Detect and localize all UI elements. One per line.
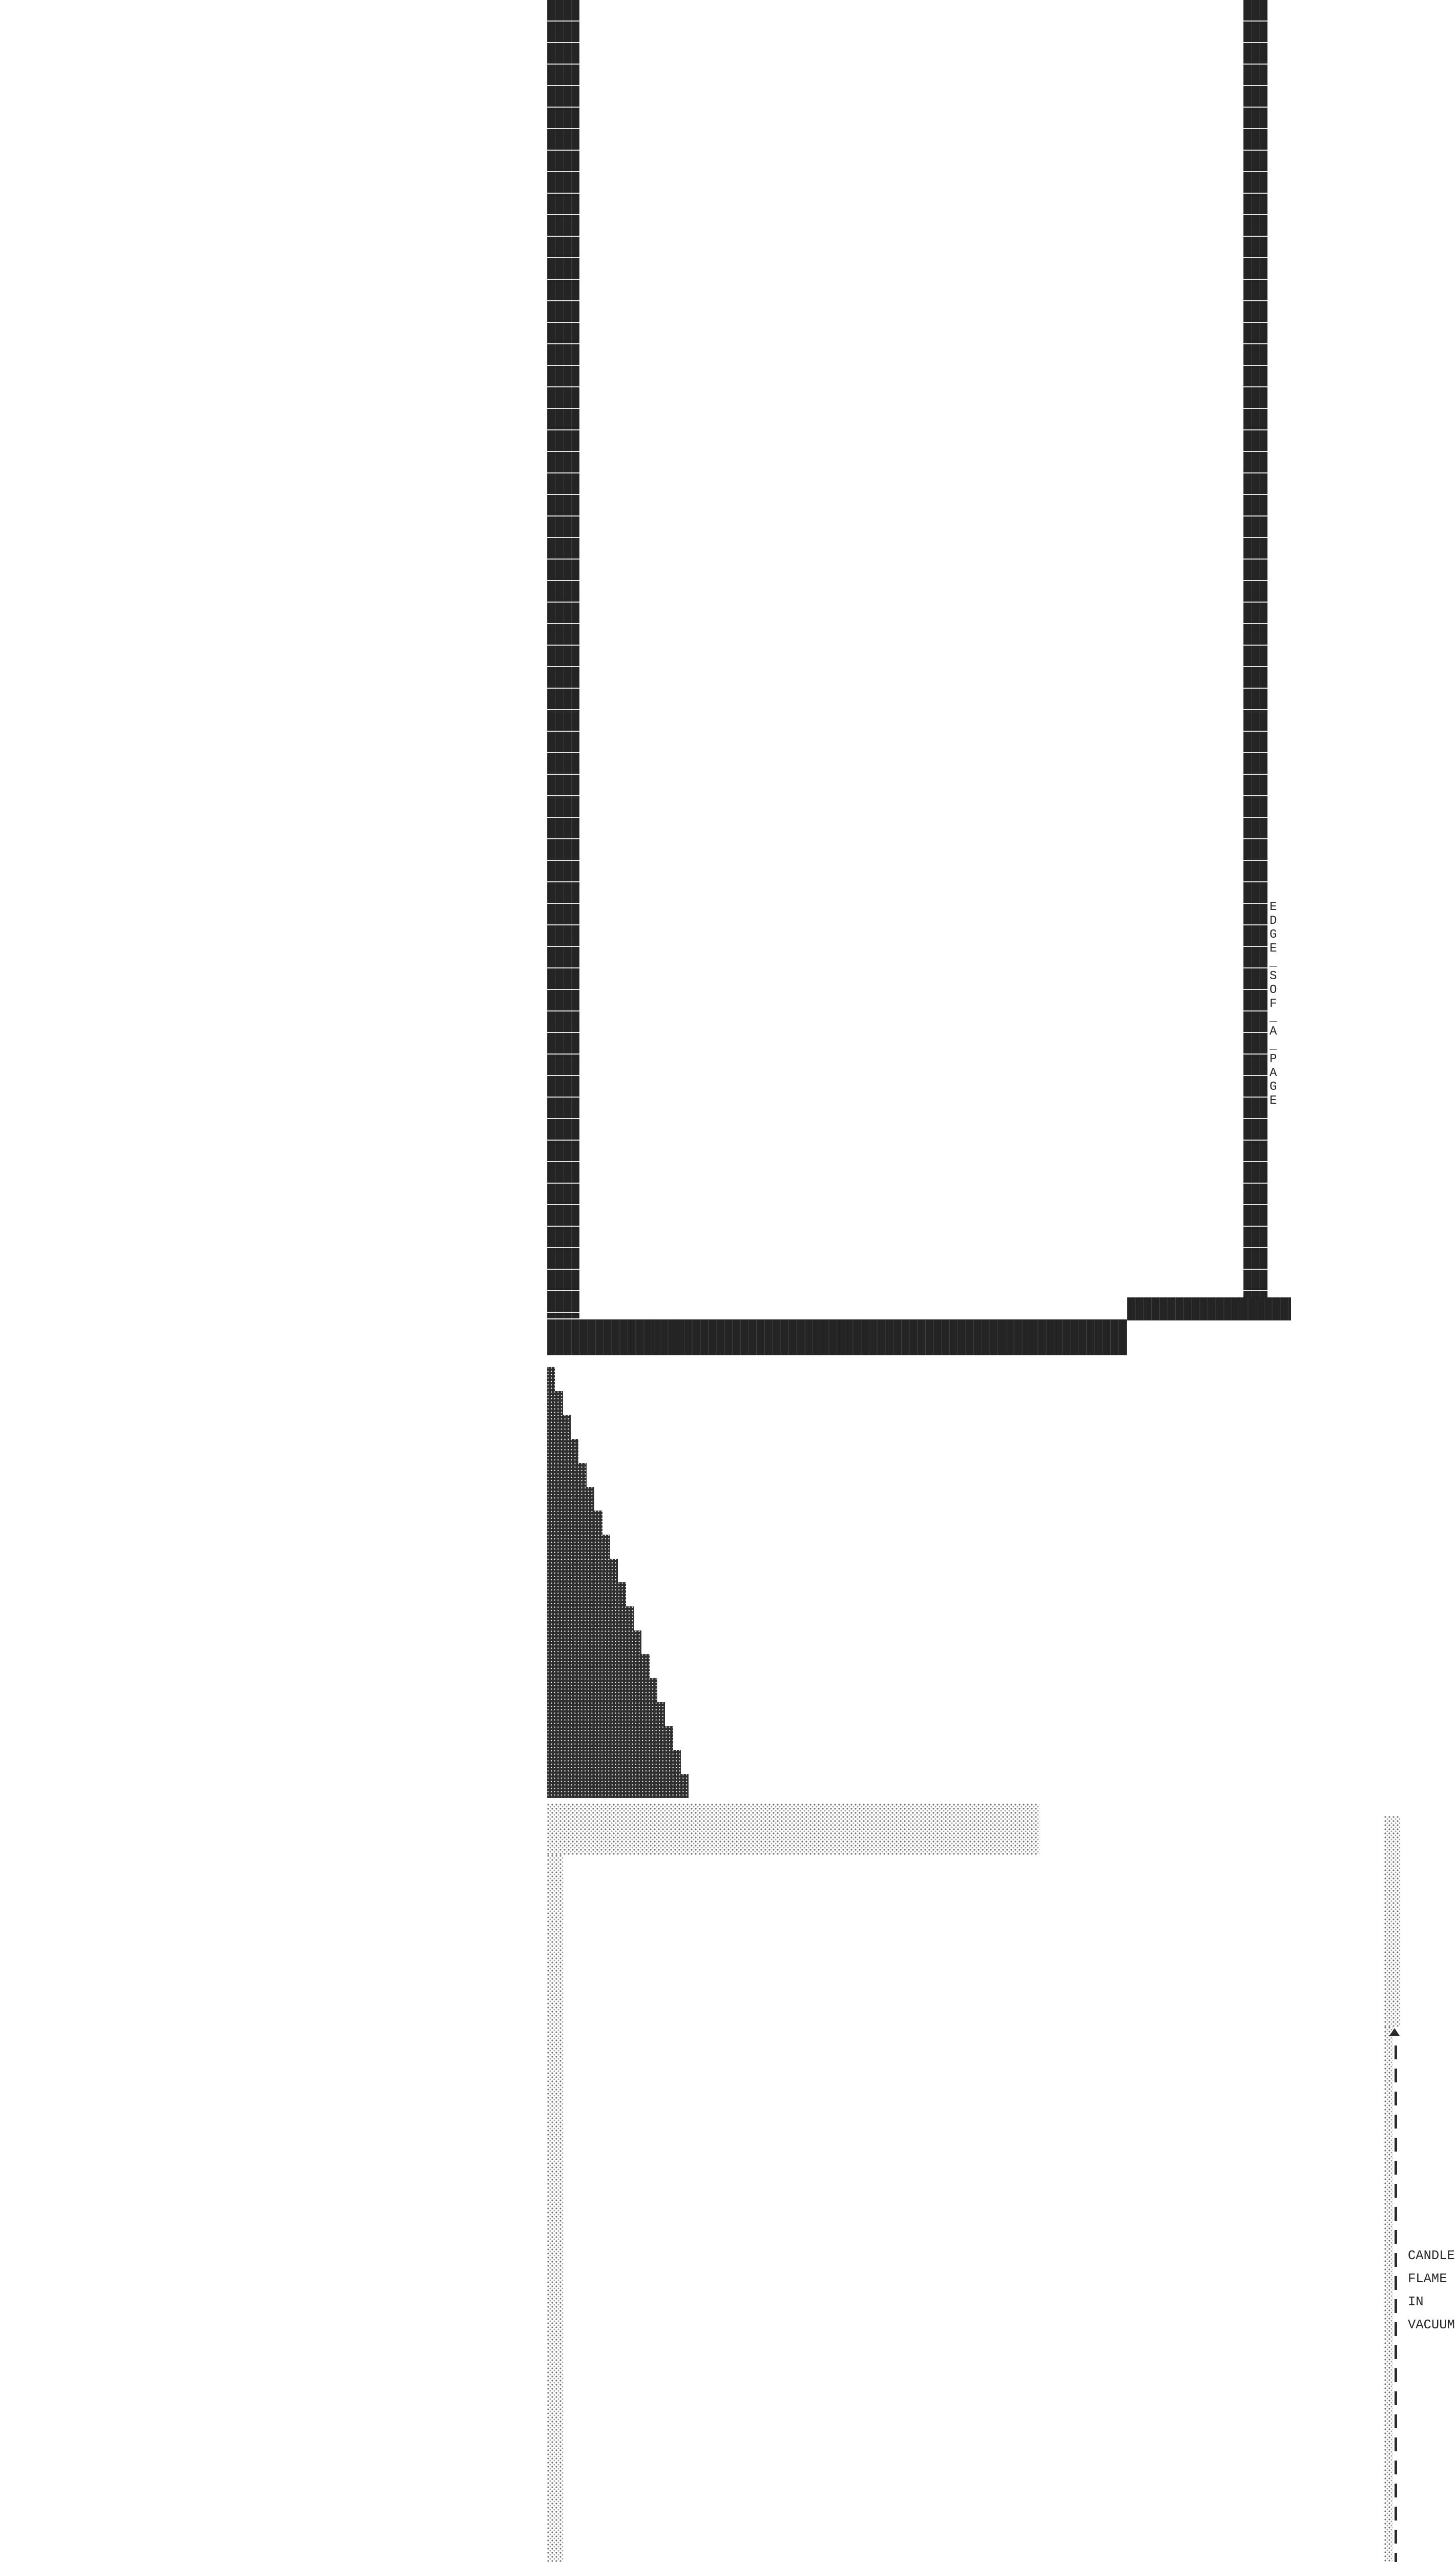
dash-segment: [1395, 2184, 1397, 2198]
staircase-triangle-row: [547, 1630, 641, 1655]
gray-shelf-post-left: [547, 1855, 563, 2562]
staircase-triangle-row: [547, 1415, 571, 1439]
page-edge-vertical-label: E D G E _ S O F _ A _ P A G E: [1270, 900, 1277, 1108]
staircase-triangle-row: [547, 1582, 626, 1606]
dash-segment: [1395, 2437, 1397, 2451]
dash-segment: [1395, 2253, 1397, 2267]
dash-segment: [1395, 2069, 1397, 2082]
dash-segment: [1395, 2092, 1397, 2105]
dash-segment: [1395, 2484, 1397, 2497]
staircase-triangle-row: [547, 1391, 563, 1415]
dash-segment: [1395, 2414, 1397, 2428]
staircase-triangle-row: [547, 1774, 689, 1798]
arrow-up-icon: [1389, 2028, 1400, 2036]
dash-segment: [1395, 2461, 1397, 2474]
dash-segment: [1395, 2230, 1397, 2244]
dash-segment: [1395, 2299, 1397, 2313]
dash-segment: [1395, 2115, 1397, 2129]
dash-segment: [1395, 2322, 1397, 2336]
dash-segment: [1395, 2207, 1397, 2221]
dash-segment: [1395, 2345, 1397, 2359]
dash-segment: [1395, 2507, 1397, 2520]
staircase-triangle-row: [547, 1678, 657, 1702]
staircase-triangle-row: [547, 1439, 578, 1463]
staircase-triangle-row: [547, 1535, 610, 1559]
gray-shelf-bar-horizontal: [547, 1804, 1039, 1855]
staircase-triangle-row: [547, 1367, 555, 1391]
dash-segment: [1395, 2391, 1397, 2405]
dash-segment: [1395, 2530, 1397, 2544]
staircase-triangle-row: [547, 1750, 681, 1774]
staircase-triangle-row: [547, 1511, 602, 1535]
right-bookend-column: [1243, 0, 1267, 1297]
staircase-triangle-row: [547, 1654, 650, 1678]
staircase-triangle-row: [547, 1463, 587, 1487]
gray-post-right-narrow: [1384, 2027, 1393, 2562]
staircase-triangle-row: [547, 1726, 673, 1750]
dash-segment: [1395, 2368, 1397, 2382]
ascii-art-canvas: E D G E _ S O F _ A _ P A G E CANDLE FLA…: [0, 0, 1456, 2562]
shelf-floor-right: [1127, 1297, 1291, 1320]
gray-post-right-wide: [1384, 1816, 1400, 2027]
dash-segment: [1395, 2046, 1397, 2059]
left-bookend-column: [547, 0, 579, 1318]
dash-segment: [1395, 2553, 1397, 2562]
staircase-triangle-row: [547, 1702, 665, 1726]
candle-caption: CANDLE FLAME IN VACUUM: [1408, 2244, 1455, 2337]
dash-segment: [1395, 2138, 1397, 2152]
dash-segment: [1395, 2276, 1397, 2290]
dash-segment: [1395, 2161, 1397, 2175]
shelf-floor-left: [547, 1319, 1127, 1355]
staircase-triangle-row: [547, 1606, 634, 1630]
staircase-triangle-row: [547, 1559, 618, 1583]
staircase-triangle-row: [547, 1487, 594, 1511]
